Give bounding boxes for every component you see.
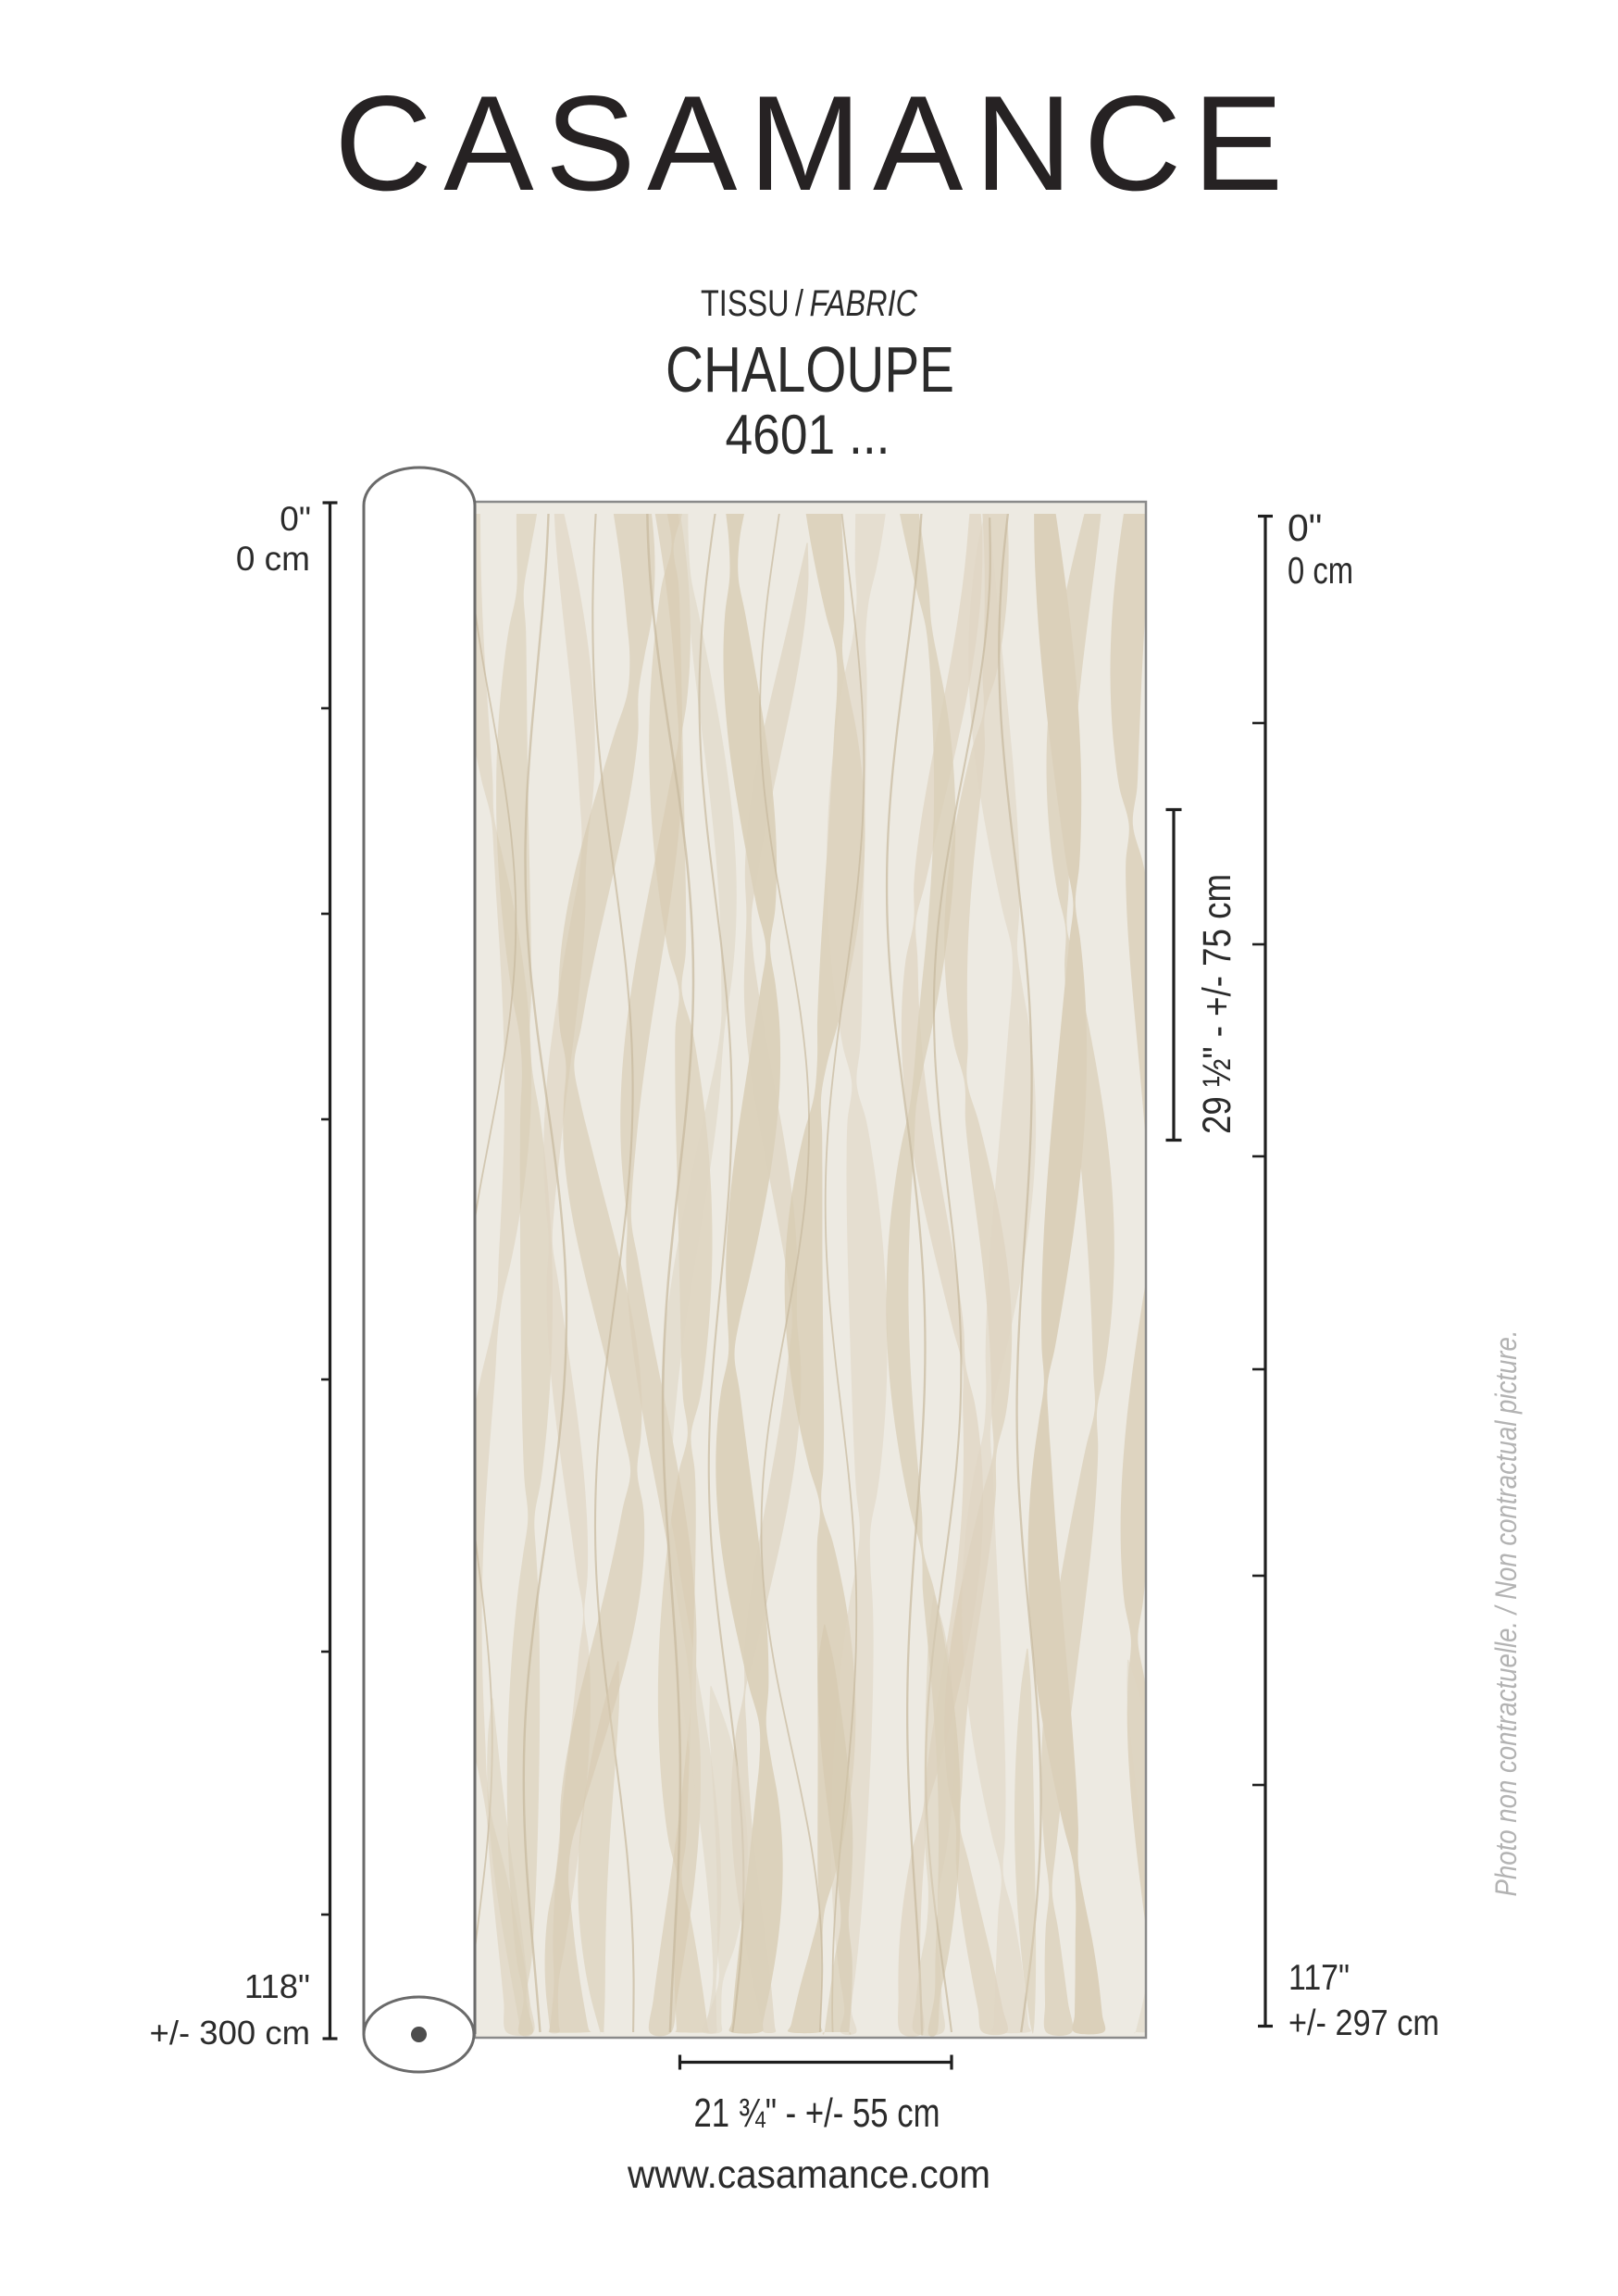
svg-text:0": 0" xyxy=(280,500,311,538)
svg-text:117": 117" xyxy=(1288,1958,1350,1998)
svg-text:118": 118" xyxy=(244,1967,310,2005)
svg-text:0 cm: 0 cm xyxy=(236,540,310,578)
svg-text:4601 ...: 4601 ... xyxy=(726,404,890,466)
svg-text:21 ¾" - +/- 55 cm: 21 ¾" - +/- 55 cm xyxy=(694,2090,940,2136)
svg-text:0 cm: 0 cm xyxy=(1288,549,1353,592)
svg-text:CASAMANCE: CASAMANCE xyxy=(334,68,1294,218)
svg-text:CHALOUPE: CHALOUPE xyxy=(666,333,954,406)
svg-text:TISSU / FABRIC: TISSU / FABRIC xyxy=(701,283,918,324)
svg-text:www.casamance.com: www.casamance.com xyxy=(627,2152,990,2197)
svg-text:+/- 300 cm: +/- 300 cm xyxy=(150,2014,310,2052)
svg-text:0": 0" xyxy=(1288,506,1322,549)
svg-text:+/- 297 cm: +/- 297 cm xyxy=(1288,2003,1439,2043)
svg-text:Photo non contractuelle. / Non: Photo non contractuelle. / Non contractu… xyxy=(1489,1330,1523,1897)
svg-text:29 ½" - +/- 75 cm: 29 ½" - +/- 75 cm xyxy=(1196,874,1239,1134)
